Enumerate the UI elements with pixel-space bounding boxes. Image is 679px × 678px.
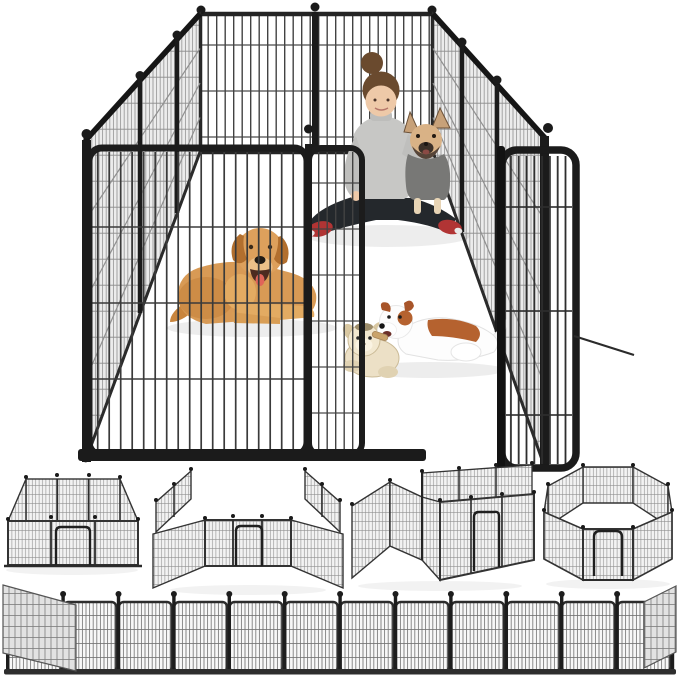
plush-toy-leg — [378, 366, 398, 378]
puppy-ear — [381, 302, 391, 312]
fence-panel — [174, 602, 227, 672]
config-thumbnail-open — [153, 467, 343, 595]
gate-door-mesh — [506, 156, 572, 464]
fence-panel — [340, 602, 393, 672]
front-left-corner-post — [82, 140, 91, 462]
puppy-nose — [379, 323, 385, 329]
gate-latch-rod — [574, 336, 634, 355]
fence-panel — [230, 602, 283, 672]
front-left-panel-mesh — [92, 152, 304, 452]
config-thumbnails — [4, 461, 674, 595]
product-image — [0, 0, 679, 678]
straight-fence-row — [3, 585, 676, 675]
fence-panel — [396, 602, 449, 672]
thumb-side-wall — [291, 520, 343, 588]
puppy-hind-leg — [451, 343, 481, 361]
frenchie-leg — [414, 198, 421, 214]
woman-hair-bun — [361, 52, 383, 74]
fence-panel — [562, 602, 615, 672]
thumb-connector-wall — [422, 497, 440, 580]
gate-hinge-stile — [497, 146, 505, 476]
config-thumbnail-octagon — [542, 463, 674, 589]
post-ball-finial — [82, 129, 92, 139]
woman-face — [366, 86, 397, 117]
frenchie-leg — [434, 198, 441, 214]
config-thumbnail-zigzag — [350, 461, 536, 591]
fence-panel — [507, 602, 560, 672]
fence-panel — [451, 602, 504, 672]
thumb-corner-wall — [390, 482, 422, 560]
config-thumbnail-rectangle — [4, 473, 142, 575]
fence-bottom-rail — [4, 669, 676, 675]
post-ball-finial — [136, 71, 145, 80]
product-canvas — [0, 0, 679, 678]
thumb-back-wall — [26, 479, 120, 521]
thumb-left-wall — [352, 482, 390, 578]
front-bottom-rail — [78, 449, 426, 461]
puppy-ear — [404, 301, 414, 312]
thumb-side-wall — [153, 520, 205, 588]
frenchie-sweater — [405, 154, 450, 200]
fence-panel — [119, 602, 172, 672]
post-ball-finial — [311, 3, 320, 12]
post-ball-finial — [304, 125, 313, 134]
post-ball-finial — [543, 123, 553, 133]
gate-door-open — [497, 123, 634, 476]
back-wall-post — [312, 12, 319, 152]
thumb-front-wall — [583, 529, 633, 580]
post-ball-finial — [173, 31, 182, 40]
post-ball-finial — [458, 38, 467, 47]
gate-side-panel-mesh — [312, 152, 359, 452]
post-ball-finial — [493, 76, 502, 85]
main-playpen-scene — [78, 3, 634, 477]
thumb-front-row — [440, 494, 534, 580]
gate-post — [305, 144, 312, 458]
fence-panel — [285, 602, 338, 672]
